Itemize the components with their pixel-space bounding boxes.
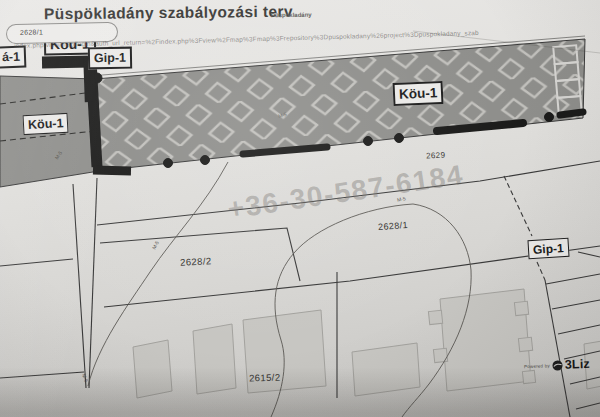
brand-text: 3Liz: [565, 357, 591, 372]
parcel-label-2628-2: 2628/2: [180, 255, 212, 268]
parcel-tooltip-value: 2628/1: [20, 27, 117, 36]
page-title-suffix: Püspökladány: [271, 12, 312, 18]
building-5-with-bumps: [428, 289, 535, 391]
zone-label-gip1-right: Gip-1: [527, 238, 569, 259]
dashed-boundary: [504, 176, 545, 280]
page-title: Püspökladány szabályozási terv: [44, 3, 293, 24]
scanned-zoning-map-photo: Püspökladány szabályozási terv Püspöklad…: [0, 0, 600, 417]
building-2: [193, 324, 236, 394]
buildings: [133, 289, 600, 398]
zone-label-gip1-top: Gip-1: [88, 47, 132, 69]
powered-by-attribution: Powered by 3Liz: [524, 357, 590, 373]
building-1: [133, 340, 172, 398]
zone-label-kou1-left: Köu-1: [23, 113, 69, 135]
road-band-hatched: [95, 39, 585, 171]
parcel-label-2628-1: 2628/1: [378, 220, 409, 232]
building-4: [352, 343, 420, 396]
zone-label-kou1-band: Köu-1: [393, 81, 444, 106]
parcel-label-2615-2: 2615/2: [249, 371, 281, 383]
powered-by-text: Powered by: [524, 363, 550, 369]
parcel-label-2629: 2629: [426, 150, 446, 160]
globe-icon: [552, 359, 563, 370]
